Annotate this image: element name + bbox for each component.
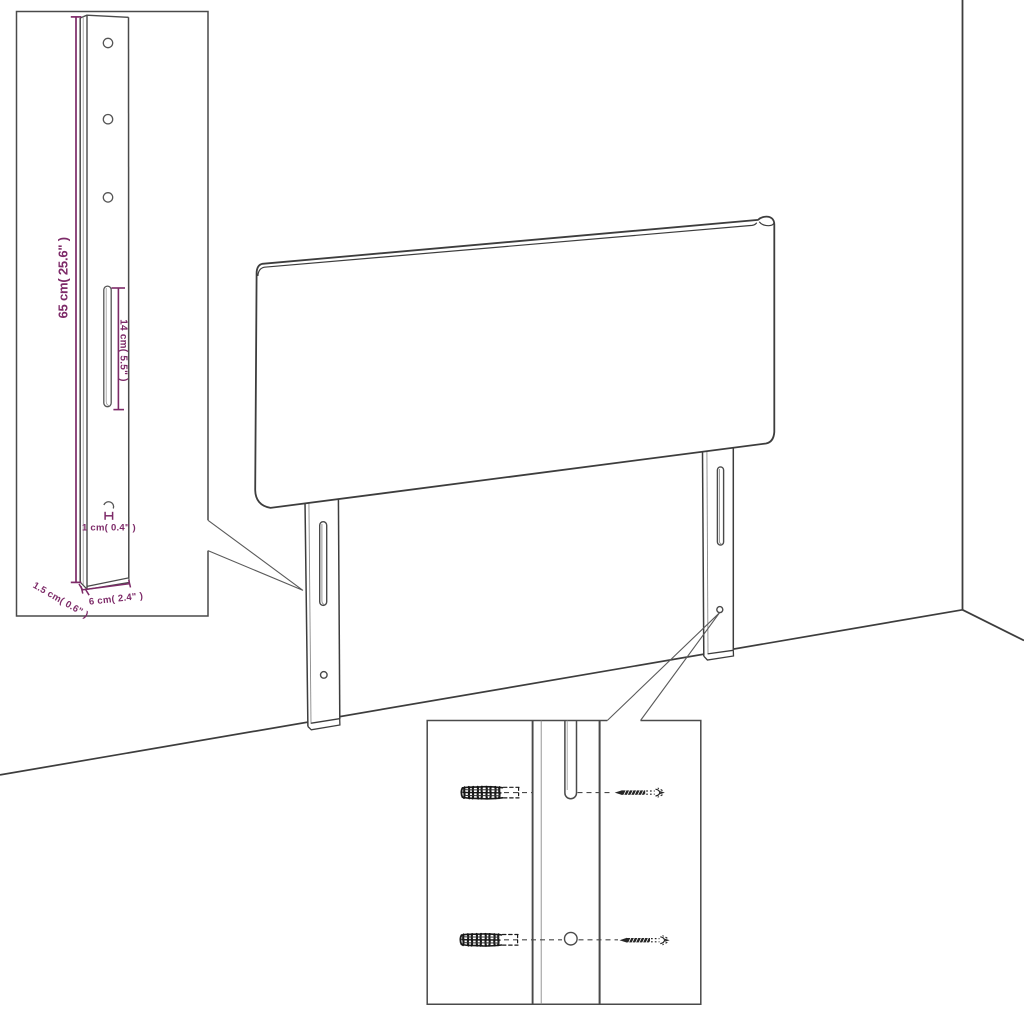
svg-text:14 cm( 5.5" ): 14 cm( 5.5" ) (117, 319, 128, 381)
svg-text:65 cm( 25.6" ): 65 cm( 25.6" ) (56, 237, 71, 318)
svg-text:1 cm( 0.4" ): 1 cm( 0.4" ) (82, 523, 136, 534)
